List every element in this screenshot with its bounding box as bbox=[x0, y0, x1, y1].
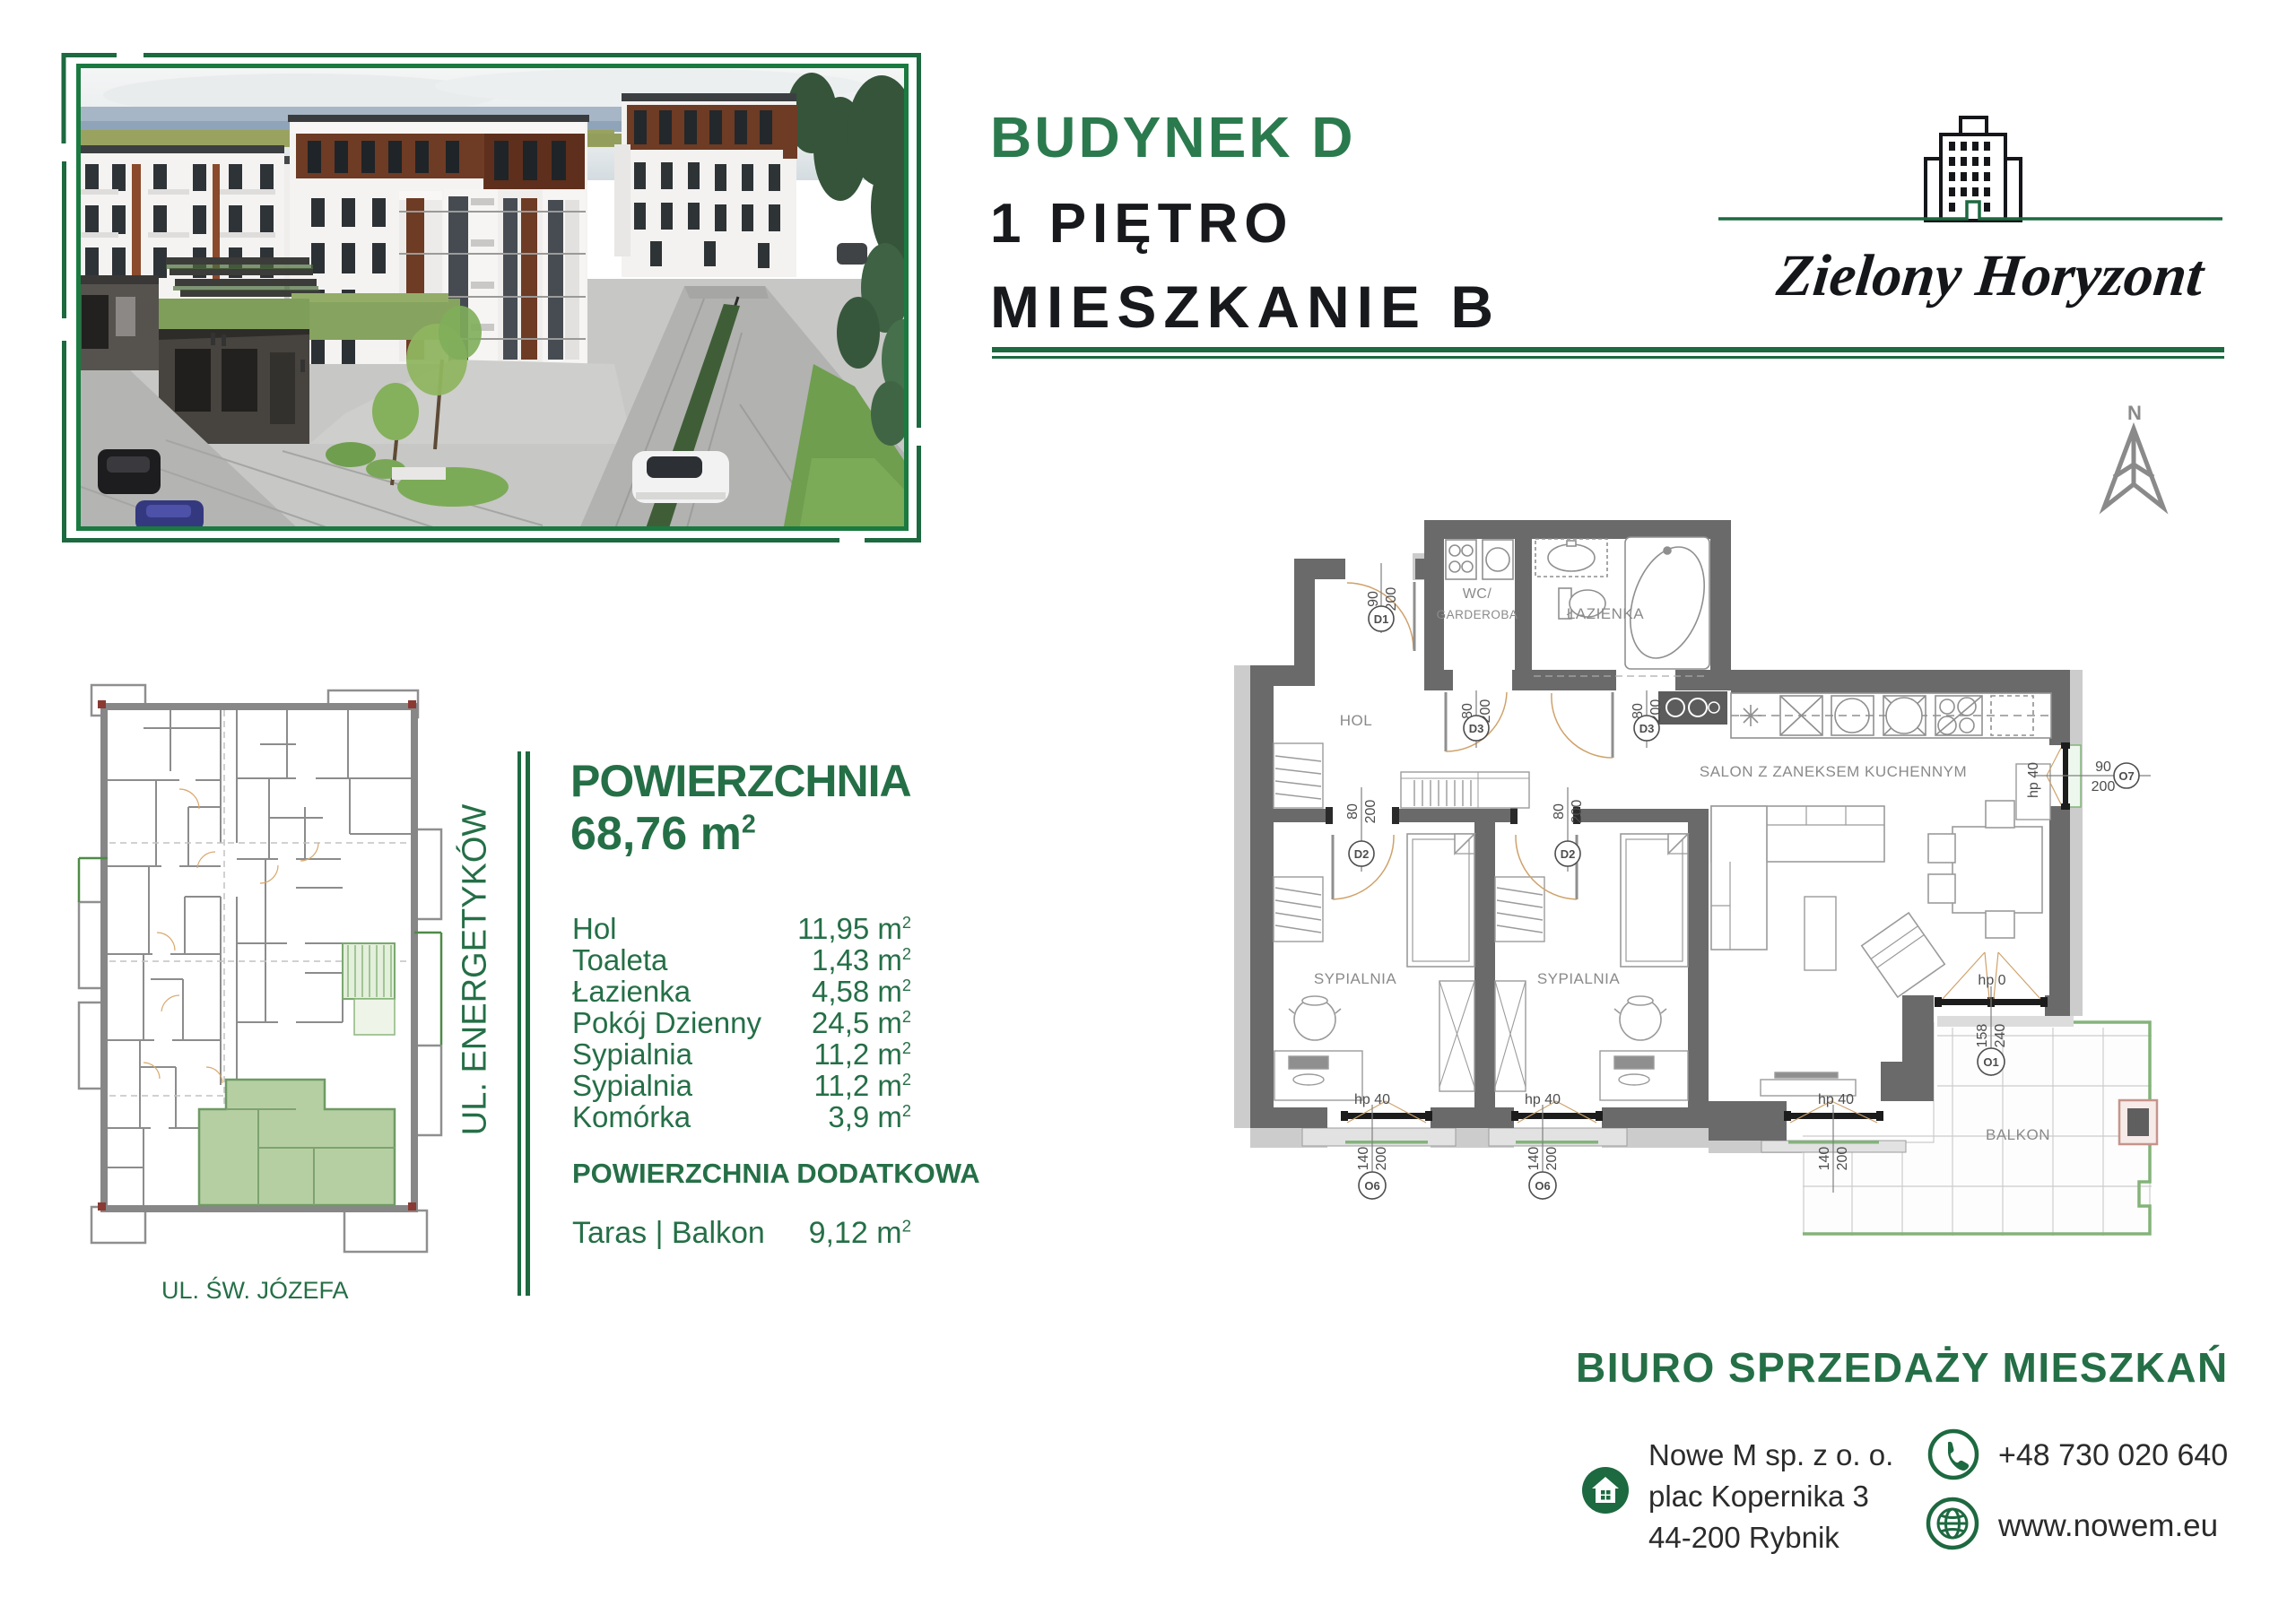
svg-text:WC/: WC/ bbox=[1463, 586, 1492, 602]
svg-text:D3: D3 bbox=[1639, 722, 1655, 735]
svg-text:hp 0: hp 0 bbox=[1978, 973, 2005, 988]
svg-text:D2: D2 bbox=[1561, 847, 1576, 861]
svg-text:O7: O7 bbox=[2118, 769, 2134, 783]
svg-text:200: 200 bbox=[1570, 800, 1585, 824]
svg-text:GARDEROBA: GARDEROBA bbox=[1437, 608, 1518, 621]
svg-text:90: 90 bbox=[1366, 591, 1381, 607]
svg-text:SALON Z ZANEKSEM KUCHENNYM: SALON Z ZANEKSEM KUCHENNYM bbox=[1700, 763, 1967, 780]
svg-text:200: 200 bbox=[1374, 1147, 1389, 1171]
svg-text:80: 80 bbox=[1345, 803, 1361, 820]
svg-text:200: 200 bbox=[1835, 1147, 1850, 1171]
svg-text:240: 240 bbox=[1993, 1024, 2008, 1048]
svg-text:BALKON: BALKON bbox=[1986, 1126, 2050, 1143]
svg-text:hp 40: hp 40 bbox=[2026, 762, 2041, 798]
svg-text:hp 40: hp 40 bbox=[1818, 1092, 1854, 1107]
svg-text:O1: O1 bbox=[1983, 1055, 1998, 1069]
svg-text:hp 40: hp 40 bbox=[1525, 1092, 1561, 1107]
svg-text:140: 140 bbox=[1356, 1147, 1371, 1171]
svg-text:D2: D2 bbox=[1354, 847, 1370, 861]
svg-text:O6: O6 bbox=[1364, 1179, 1379, 1193]
svg-text:200: 200 bbox=[2092, 779, 2116, 794]
svg-text:N: N bbox=[2127, 402, 2142, 424]
svg-text:200: 200 bbox=[1544, 1147, 1560, 1171]
svg-text:ŁAZIENKA: ŁAZIENKA bbox=[1567, 605, 1644, 622]
svg-text:140: 140 bbox=[1817, 1147, 1832, 1171]
svg-text:SYPIALNIA: SYPIALNIA bbox=[1537, 970, 1621, 987]
svg-text:D3: D3 bbox=[1469, 722, 1484, 735]
svg-text:140: 140 bbox=[1526, 1147, 1542, 1171]
svg-text:158: 158 bbox=[1975, 1024, 1990, 1048]
svg-text:HOL: HOL bbox=[1340, 712, 1372, 729]
svg-text:O6: O6 bbox=[1535, 1179, 1550, 1193]
svg-text:D1: D1 bbox=[1374, 612, 1389, 626]
svg-text:90: 90 bbox=[2095, 759, 2111, 775]
svg-text:200: 200 bbox=[1363, 800, 1378, 824]
svg-text:hp 40: hp 40 bbox=[1354, 1092, 1390, 1107]
svg-text:SYPIALNIA: SYPIALNIA bbox=[1314, 970, 1397, 987]
svg-text:80: 80 bbox=[1552, 803, 1567, 820]
